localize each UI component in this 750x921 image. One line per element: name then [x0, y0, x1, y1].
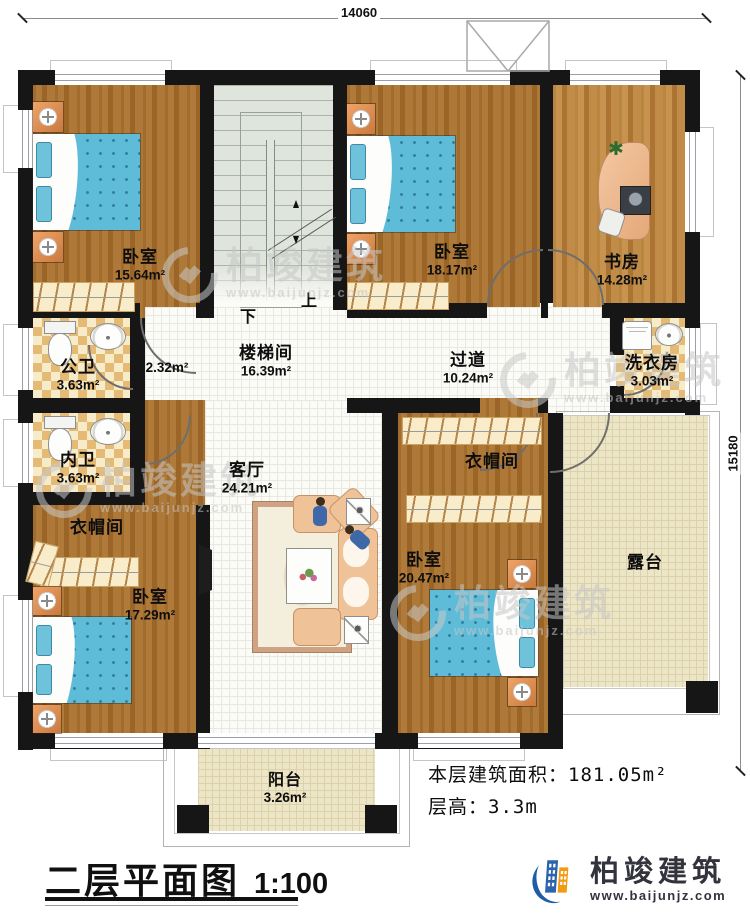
- person: [313, 497, 327, 527]
- window: [570, 70, 660, 85]
- stair-down-label: 下: [240, 303, 256, 327]
- bed-sheet-fold: [488, 590, 516, 676]
- room-name: 过道: [443, 350, 493, 370]
- title-underline-shadow: [45, 905, 298, 906]
- room-label-bedroom-br: 卧室 20.47m²: [399, 550, 449, 585]
- computer-monitor: [620, 186, 651, 215]
- brand-logo: 柏竣建筑 www.baijunjz.com: [528, 853, 726, 907]
- wardrobe-rack: [402, 417, 542, 445]
- balcony-door-window: [198, 733, 375, 748]
- window-sill: [700, 323, 717, 405]
- sofa-single-bottom: [293, 608, 341, 646]
- sink: [90, 323, 126, 350]
- room-name: 书房: [597, 252, 647, 272]
- room-label-living: 客厅 24.21m²: [222, 460, 272, 495]
- room-name: 卧室: [427, 242, 477, 262]
- room-name: 阳台: [264, 772, 307, 790]
- wall-bath-bottom: [18, 492, 145, 505]
- floor-area-label: 本层建筑面积：: [428, 765, 568, 786]
- window: [685, 132, 700, 232]
- wall-h1-e: [541, 303, 548, 318]
- pillow: [350, 144, 366, 179]
- nightstand: [33, 587, 61, 615]
- bed-sheet-fold: [55, 134, 84, 230]
- skylight-symbol: [466, 20, 550, 72]
- room-name: 衣帽间: [70, 518, 124, 538]
- bed-headboard: [347, 136, 369, 232]
- wall-stair-right: [333, 85, 347, 310]
- stair-arrow-down-icon: [293, 236, 299, 244]
- window-sill: [50, 748, 167, 761]
- nightstand: [508, 560, 536, 588]
- bed-mattress: [369, 136, 455, 232]
- floor-height-label: 层高：: [428, 797, 488, 818]
- room-name: 卧室: [399, 550, 449, 570]
- floor-plan: 下 上 ✱: [0, 0, 750, 921]
- floor-height-value: 3.3m: [488, 796, 538, 818]
- balcony-post-right: [365, 805, 397, 833]
- nightstand: [347, 234, 375, 264]
- wall-living-right: [382, 413, 398, 749]
- brand-website: www.baijunjz.com: [590, 888, 726, 903]
- room-area: 3.03m²: [625, 373, 679, 389]
- stair-arrow-up-icon: [293, 200, 299, 208]
- brand-logo-icon: [528, 853, 582, 907]
- room-area: 20.47m²: [399, 570, 449, 586]
- room-name: 公卫: [57, 357, 100, 377]
- dimension-height-label: 15180: [726, 432, 741, 474]
- room-area: 10.24m²: [443, 370, 493, 386]
- dimension-width-label: 14060: [338, 5, 380, 20]
- room-area: 16.39m²: [239, 363, 293, 379]
- terrace-post-bottom: [686, 681, 718, 713]
- corridor-floor: [145, 307, 610, 400]
- person-head: [316, 497, 325, 506]
- window: [375, 70, 510, 85]
- bed: [33, 134, 140, 230]
- floor-area-value: 181.05m²: [568, 764, 668, 786]
- wall-bath-mid: [18, 398, 130, 413]
- floor-height-line: 层高：3.3m: [428, 792, 538, 819]
- window: [18, 110, 33, 168]
- bed-mattress: [55, 134, 140, 230]
- room-name: 洗衣房: [625, 353, 679, 373]
- window: [55, 733, 163, 748]
- room-name: 内卫: [57, 450, 100, 470]
- wall-h2-laundry: [610, 398, 697, 413]
- wall-h1-b: [196, 303, 214, 318]
- room-area: 3.63m²: [57, 377, 100, 393]
- room-label-inner-bath: 内卫 3.63m²: [57, 450, 100, 485]
- bed: [430, 590, 538, 676]
- sink: [90, 418, 126, 445]
- balcony-post-left: [177, 805, 209, 833]
- stair-up-label: 上: [301, 287, 317, 311]
- wardrobe-rack: [406, 495, 542, 523]
- nightstand: [33, 102, 63, 132]
- washing-machine: [622, 321, 652, 350]
- room-area: 14.28m²: [597, 272, 647, 288]
- plant: ✱: [608, 138, 624, 161]
- room-label-balcony: 阳台 3.26m²: [264, 772, 307, 806]
- bed-mattress: [55, 617, 131, 703]
- dimension-line-right: [740, 75, 741, 772]
- pillow: [36, 664, 52, 696]
- window: [18, 328, 33, 390]
- room-area: 15.64m²: [115, 267, 165, 283]
- floor-area-line: 本层建筑面积：181.05m²: [428, 760, 668, 787]
- wardrobe-rack: [347, 282, 449, 310]
- pillow: [519, 637, 535, 669]
- room-name: 楼梯间: [239, 343, 293, 363]
- window: [418, 733, 520, 748]
- bed-headboard: [516, 590, 538, 676]
- room-name: 露台: [627, 553, 663, 573]
- wall-stair-left: [200, 85, 214, 310]
- room-name: 卧室: [125, 587, 175, 607]
- bed-headboard: [33, 134, 55, 230]
- wall-living-left: [196, 505, 210, 749]
- nightstand: [347, 104, 375, 134]
- tv: [199, 545, 212, 595]
- table-flowers: [295, 565, 321, 585]
- pillow: [36, 142, 52, 177]
- room-label-public-bath: 公卫 3.63m²: [57, 357, 100, 392]
- room-label-terrace: 露台: [627, 553, 663, 573]
- pillow: [519, 598, 535, 630]
- room-name: 客厅: [222, 460, 272, 480]
- bed-sheet-fold: [55, 617, 81, 703]
- title-underline: [45, 897, 298, 901]
- bed: [347, 136, 455, 232]
- side-table-lamp: [344, 616, 369, 644]
- room-area: 3.63m²: [57, 470, 100, 486]
- room-area: 2.32m²: [146, 360, 189, 376]
- room-label-stairwell: 楼梯间 16.39m²: [239, 343, 293, 378]
- room-label-bedroom-bl: 卧室 17.29m²: [125, 587, 175, 622]
- window: [18, 423, 33, 483]
- pillow: [350, 188, 366, 223]
- pillow: [36, 186, 52, 221]
- room-label-study: 书房 14.28m²: [597, 252, 647, 287]
- room-area: 3.26m²: [264, 790, 307, 806]
- room-name: 衣帽间: [465, 452, 519, 472]
- sofa-cushion: [343, 577, 369, 607]
- wall-h2-a: [347, 398, 480, 413]
- nightstand: [508, 678, 536, 706]
- room-label-laundry: 洗衣房 3.03m²: [625, 353, 679, 388]
- laundry-sink: [655, 323, 683, 346]
- window: [55, 70, 165, 85]
- room-label-bedroom-tl: 卧室 15.64m²: [115, 247, 165, 282]
- person-body: [313, 506, 327, 526]
- brand-name: 柏竣建筑: [590, 857, 726, 887]
- pillow: [36, 625, 52, 657]
- room-area: 18.17m²: [427, 262, 477, 278]
- nightstand: [33, 705, 61, 733]
- nightstand: [33, 232, 63, 262]
- room-label-cloakroom-right: 衣帽间: [465, 452, 519, 472]
- room-name: 卧室: [115, 247, 165, 267]
- bed-sheet-fold: [369, 136, 398, 232]
- wardrobe-rack: [33, 282, 135, 312]
- bed-mattress: [430, 590, 516, 676]
- window: [18, 600, 33, 692]
- room-label-cloakroom-left: 衣帽间: [70, 518, 124, 538]
- window: [685, 328, 700, 400]
- room-label-vestibule: 2.32m²: [146, 360, 189, 376]
- wall-h2-b: [538, 398, 548, 413]
- bed-headboard: [33, 617, 55, 703]
- room-area: 17.29m²: [125, 607, 175, 623]
- room-label-bedroom-tm: 卧室 18.17m²: [427, 242, 477, 277]
- bed: [33, 617, 131, 703]
- room-label-corridor: 过道 10.24m²: [443, 350, 493, 385]
- room-area: 24.21m²: [222, 480, 272, 496]
